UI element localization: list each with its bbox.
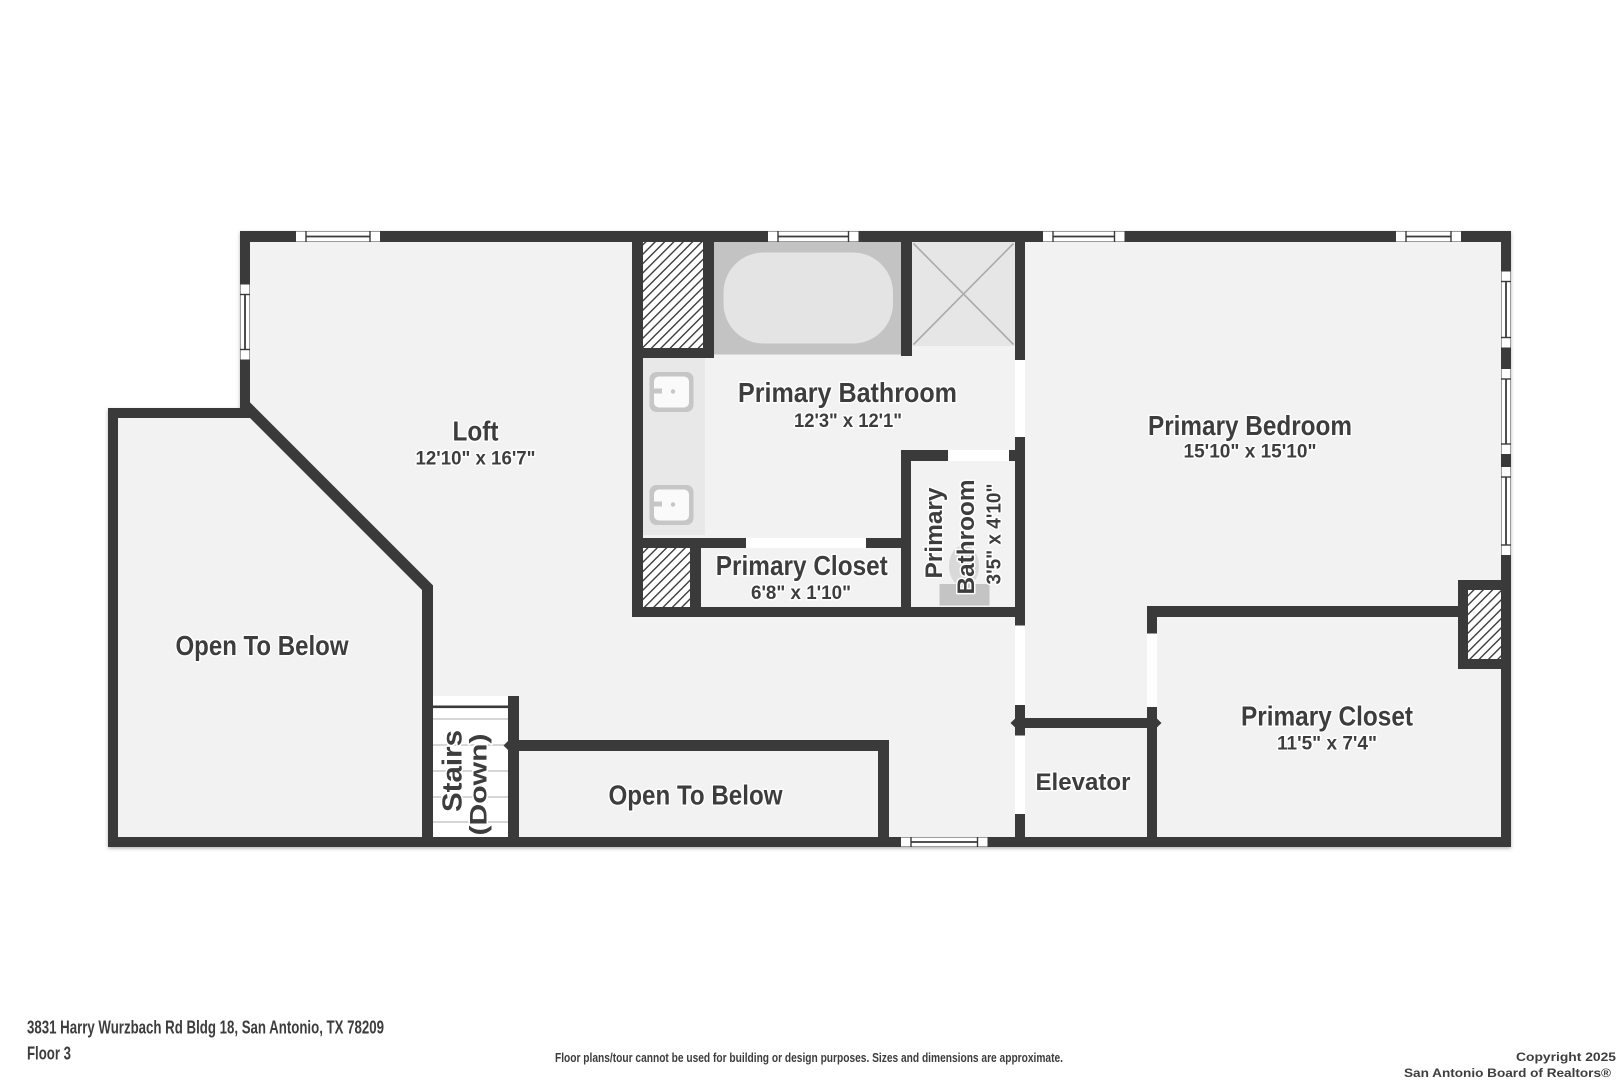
svg-text:11'5" x 7'4": 11'5" x 7'4" [1277,734,1377,755]
svg-text:Primary Closet: Primary Closet [1241,701,1413,732]
svg-text:(Down): (Down) [466,734,493,836]
svg-text:12'10" x 16'7": 12'10" x 16'7" [416,449,536,470]
svg-text:15'10" x 15'10": 15'10" x 15'10" [1184,442,1317,463]
svg-text:3831 Harry Wurzbach Rd Bldg 18: 3831 Harry Wurzbach Rd Bldg 18, San Anto… [27,1018,384,1038]
svg-text:3'5" x 4'10": 3'5" x 4'10" [984,484,1006,585]
svg-text:Primary: Primary [921,487,948,579]
svg-text:Open To Below: Open To Below [176,630,349,661]
svg-text:Floor 3: Floor 3 [27,1044,71,1064]
svg-text:Elevator: Elevator [1036,769,1131,796]
svg-text:Open To Below: Open To Below [609,780,783,811]
svg-text:12'3" x 12'1": 12'3" x 12'1" [794,411,902,432]
svg-text:Floor plans/tour cannot be use: Floor plans/tour cannot be used for buil… [555,1050,1063,1065]
svg-text:6'8" x 1'10": 6'8" x 1'10" [751,583,851,604]
svg-text:Primary Closet: Primary Closet [716,550,888,581]
svg-text:San Antonio Board of Realtors®: San Antonio Board of Realtors® [1404,1066,1611,1080]
svg-text:Stairs: Stairs [437,730,468,812]
svg-text:Primary Bathroom: Primary Bathroom [738,377,957,408]
svg-text:Bathroom: Bathroom [953,480,980,595]
svg-text:Loft: Loft [453,416,499,447]
svg-text:Primary Bedroom: Primary Bedroom [1148,410,1352,441]
svg-text:Copyright 2025: Copyright 2025 [1516,1050,1616,1064]
